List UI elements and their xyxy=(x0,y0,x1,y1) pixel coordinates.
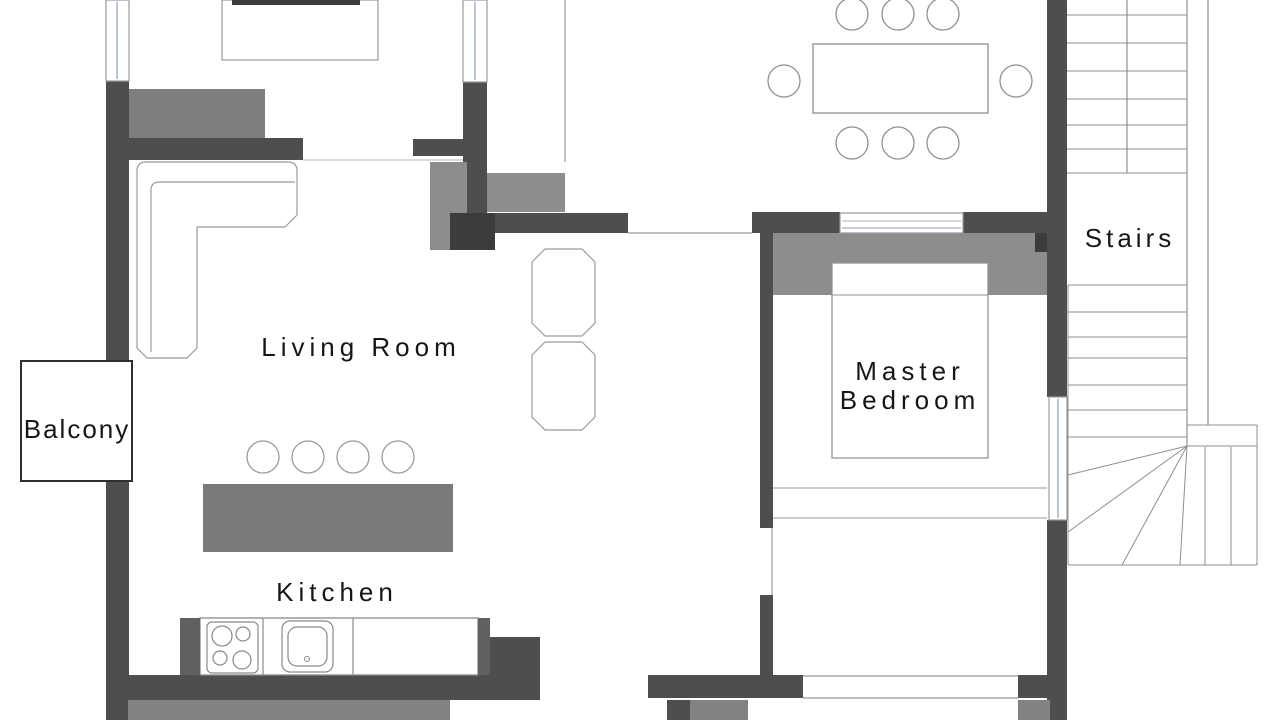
wall-center-pier xyxy=(450,213,495,250)
dining-chair-right xyxy=(1000,65,1032,97)
balcony-label: Balcony xyxy=(24,414,131,444)
sofa-outline xyxy=(137,162,297,358)
master-bedroom-label-line1: Master xyxy=(855,356,964,386)
master-bedroom-label-line2: Bedroom xyxy=(840,385,981,415)
plan-layer: Living RoomBalconyKitchenMasterBedroomSt… xyxy=(21,0,1257,720)
dining-chair-top-1 xyxy=(836,0,868,30)
counter-end-right xyxy=(478,618,490,675)
floor-plan-svg: Living RoomBalconyKitchenMasterBedroomSt… xyxy=(0,0,1280,720)
wall-stub-gray-right xyxy=(1018,700,1050,720)
dining-chair-top-2 xyxy=(882,0,914,30)
lounge-chair-2 xyxy=(532,342,595,430)
sideboard xyxy=(129,89,265,138)
dining-chair-bottom-1 xyxy=(836,127,868,159)
wall-right-mid xyxy=(1047,233,1067,397)
wall-kitchen-jog xyxy=(488,637,540,697)
wall-bottom-kitchen xyxy=(106,675,540,700)
sink xyxy=(282,621,333,672)
tv xyxy=(232,0,360,5)
wall-top-left-horizontal xyxy=(129,138,303,160)
wall-bedroom-left-lower xyxy=(760,595,773,675)
stairs-winder-3 xyxy=(1122,446,1187,565)
counter-end-left xyxy=(180,618,200,675)
wall-stub-gray xyxy=(690,700,748,720)
wall-bottom-bedroom-left xyxy=(648,675,803,698)
wall-left-upper xyxy=(106,81,129,361)
tv-stand xyxy=(222,0,378,60)
wall-gray-band-kitchen xyxy=(128,700,450,720)
lounge-chair-1 xyxy=(532,249,595,336)
dining-chair-bottom-2 xyxy=(882,127,914,159)
stairs-winder-2 xyxy=(1068,446,1187,532)
bar-stool-4 xyxy=(382,441,414,473)
wall-bedroom-top-right xyxy=(963,212,1067,233)
stairs-winder-1 xyxy=(1068,446,1187,475)
dining-chair-bottom-3 xyxy=(927,127,959,159)
dining-table xyxy=(813,44,988,113)
kitchen-island xyxy=(203,484,453,552)
wall-dining-right xyxy=(1047,0,1067,233)
floor-plan-page: Living RoomBalconyKitchenMasterBedroomSt… xyxy=(0,0,1280,720)
bar-stool-3 xyxy=(337,441,369,473)
bar-stool-1 xyxy=(247,441,279,473)
bar-stool-2 xyxy=(292,441,324,473)
wall-stub-dark xyxy=(667,700,690,720)
cabinet-junction-top xyxy=(487,173,565,212)
window-bedroom-top xyxy=(840,213,963,233)
wall-bedroom-top-left xyxy=(752,212,840,233)
dining-chair-top-3 xyxy=(927,0,959,30)
living-room-label: Living Room xyxy=(261,332,461,362)
wall-bedroom-left-upper xyxy=(760,233,773,528)
stairs-winder-4 xyxy=(1180,446,1187,565)
wall-bottom-bedroom-right xyxy=(1018,675,1067,698)
dining-chair-left xyxy=(768,65,800,97)
kitchen-label: Kitchen xyxy=(276,577,398,607)
stairs-label: Stairs xyxy=(1085,223,1175,253)
